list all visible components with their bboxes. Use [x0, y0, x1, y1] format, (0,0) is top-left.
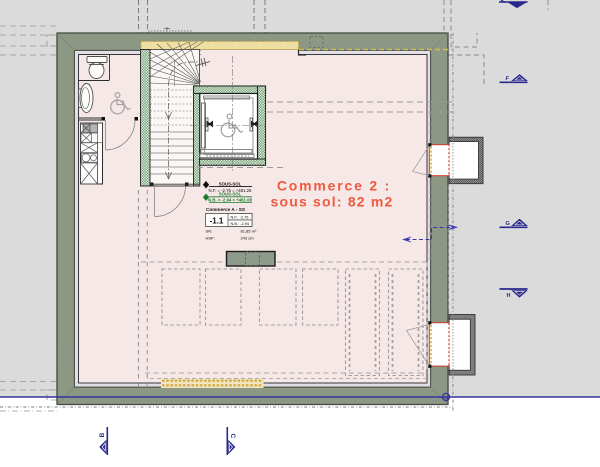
svg-text:SOUS-SOL: SOUS-SOL: [219, 192, 242, 197]
svg-text:sous sol: 82 m2: sous sol: 82 m2: [270, 194, 393, 210]
svg-text:G: G: [506, 221, 510, 227]
svg-text:N.B. = -2.94 = +481.08: N.B. = -2.94 = +481.08: [208, 198, 252, 203]
svg-text:HSP:: HSP:: [206, 236, 215, 241]
svg-text:81,85 m²: 81,85 m²: [241, 229, 257, 234]
svg-text:G: G: [444, 396, 448, 401]
svg-text:SOUS-SOL: SOUS-SOL: [219, 181, 242, 186]
svg-text:N.F.: -2.76: N.F.: -2.76: [231, 214, 249, 219]
svg-text:-1.1: -1.1: [210, 217, 224, 226]
svg-text:H: H: [507, 293, 511, 299]
svg-text:N.B.: -2.94: N.B.: -2.94: [231, 221, 250, 226]
svg-text:C: C: [229, 434, 236, 439]
svg-text:Commerce 2 :: Commerce 2 :: [277, 178, 391, 194]
svg-text:SN:: SN:: [206, 229, 213, 234]
svg-text:B: B: [99, 432, 106, 437]
svg-text:243 cm: 243 cm: [241, 236, 255, 241]
svg-text:Commerce A - SS: Commerce A - SS: [206, 207, 245, 212]
